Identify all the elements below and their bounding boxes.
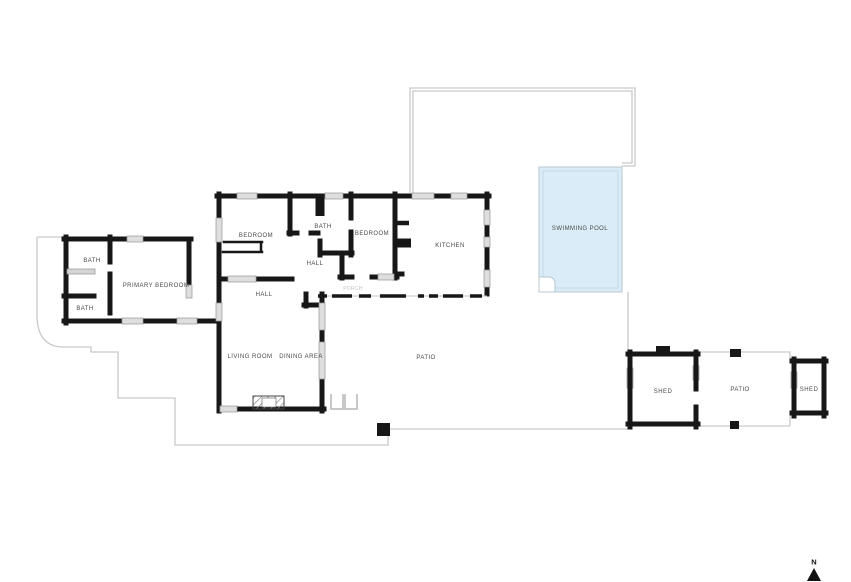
compass-north-label: N	[811, 558, 816, 567]
north-arrow-icon	[807, 568, 821, 581]
fireplace	[253, 396, 284, 409]
pool-steps-icon	[539, 277, 555, 292]
shed-vent	[656, 346, 670, 354]
room-label-patio-main: PATIO	[416, 355, 435, 361]
room-label-bath-rear: BATH	[76, 306, 93, 312]
room-label-swimming-pool: SWIMMING POOL	[552, 226, 608, 232]
floor-plan: BEDROOMBATHBEDROOMKITCHENSWIMMING POOLBA…	[0, 0, 851, 582]
shed-west-walls	[628, 346, 698, 427]
room-label-shed-east: SHED	[800, 387, 818, 393]
room-label-kitchen: KITCHEN	[435, 243, 465, 249]
lot-boundary	[37, 88, 790, 445]
patio-steps	[331, 394, 357, 409]
room-label-hall-lower: HALL	[256, 292, 273, 298]
closet-lines	[223, 242, 262, 252]
exterior-walls	[64, 194, 489, 411]
room-label-bath-front: BATH	[83, 258, 100, 264]
room-label-bedroom-2: BEDROOM	[355, 231, 389, 237]
room-label-dining-area: DINING AREA	[279, 354, 323, 360]
room-label-bath-hall: BATH	[314, 224, 331, 230]
room-label-hall-upper: HALL	[307, 261, 324, 267]
room-label-shed-west: SHED	[654, 389, 672, 395]
bath-fixture	[67, 269, 95, 274]
room-label-bedroom-1: BEDROOM	[239, 233, 273, 239]
room-label-patio-east: PATIO	[730, 387, 749, 393]
floor-plan-drawing	[0, 0, 851, 582]
interior-walls	[64, 194, 411, 411]
room-label-porch: PORCH	[343, 286, 363, 292]
room-label-primary-bedroom: PRIMARY BEDROOM	[123, 283, 190, 289]
room-label-living-room: LIVING ROOM	[228, 354, 273, 360]
